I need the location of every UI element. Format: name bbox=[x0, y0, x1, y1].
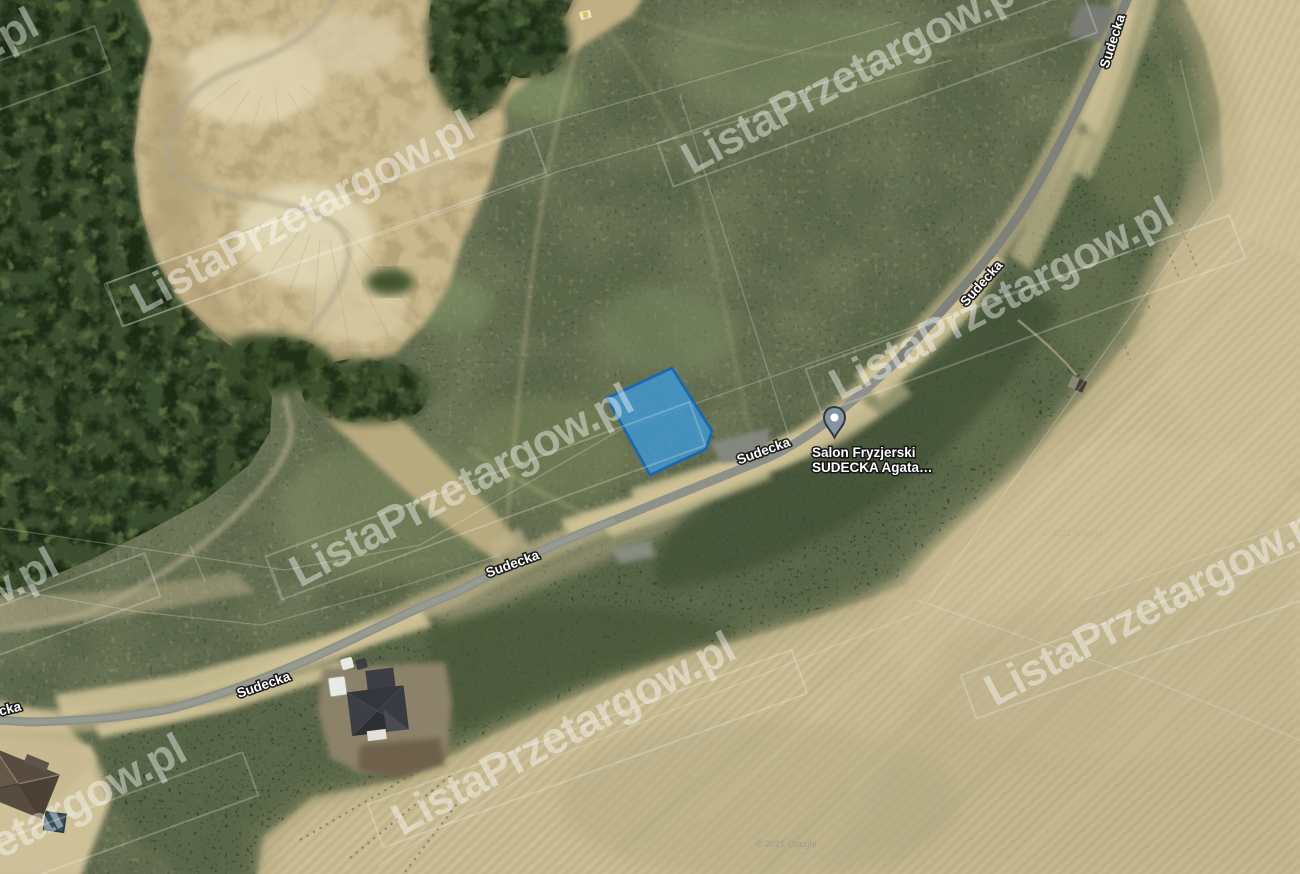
svg-text:© 2021 Google: © 2021 Google bbox=[1042, 528, 1103, 538]
svg-text:Salon Fryzjerski: Salon Fryzjerski bbox=[812, 445, 916, 460]
svg-text:© 2021 Google: © 2021 Google bbox=[756, 839, 817, 849]
svg-text:SUDECKA Agata…: SUDECKA Agata… bbox=[812, 460, 933, 475]
